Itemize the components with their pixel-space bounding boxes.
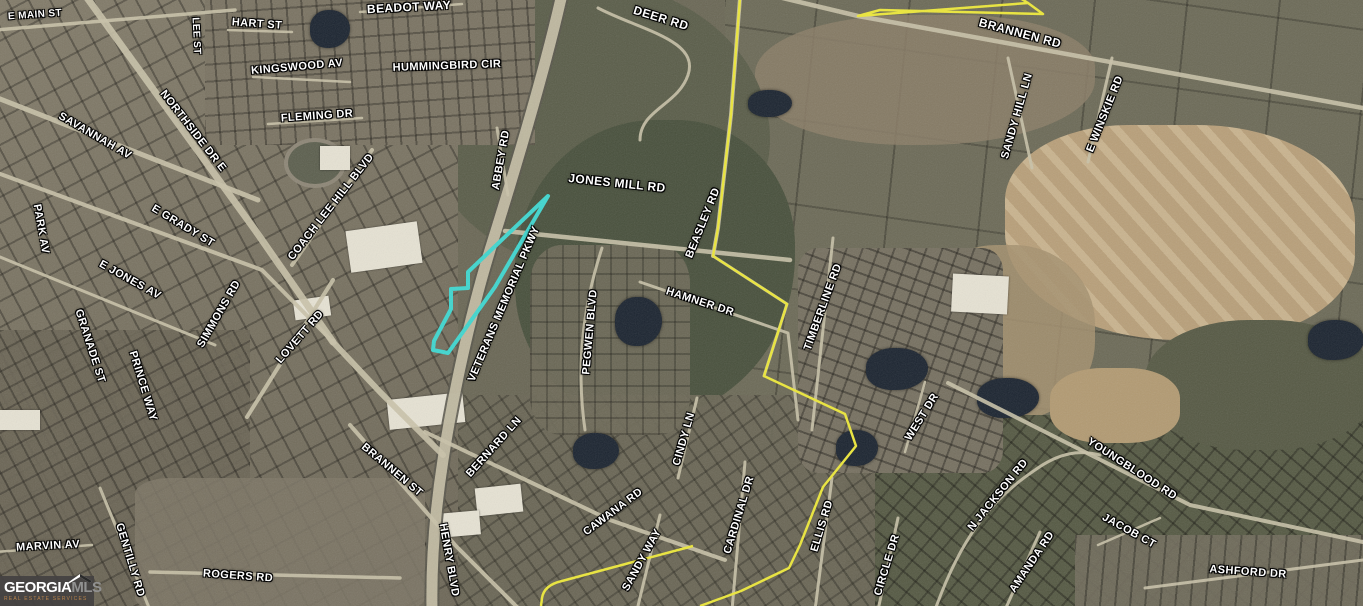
logo-tagline: REAL ESTATE SERVICES [4, 596, 92, 602]
street-label-lee-st: LEE ST [190, 17, 203, 55]
map-canvas[interactable]: E MAIN STHART STLEE STBEADOT WAYKINGSWOO… [0, 0, 1363, 606]
roof-icon [66, 574, 92, 584]
logo-brand-primary: GEORGIA [4, 580, 71, 595]
photo-grain [0, 0, 1363, 606]
georgiamls-logo: GEORGIAMLS REAL ESTATE SERVICES [0, 576, 94, 606]
map-overlay-layer [0, 0, 1363, 606]
